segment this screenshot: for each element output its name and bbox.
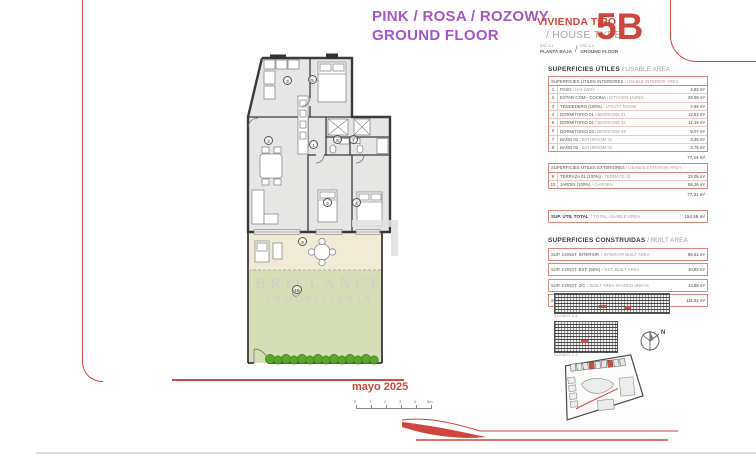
room-number-bathroom2: 8	[333, 135, 342, 144]
built-area-title: SUPERFICIES CONSTRUIDAS / BUILT AREA	[548, 237, 708, 244]
floor-plan-page: PINK / ROSA / ROZOWY GROUND FLOOR VIVIEN…	[0, 0, 756, 456]
room-number-terrace: 9	[298, 237, 307, 246]
room-number-hallway: 1	[309, 140, 318, 149]
elevation-caption-1: ALZADO 3-4	[554, 314, 578, 318]
exterior-total: 77,31 m²	[548, 189, 708, 200]
planta-baja-label: PLANTA BAJA	[540, 49, 572, 55]
area-row: 7 BAÑO 01 / BATHROOM 01 3,45 m²	[549, 135, 707, 143]
interior-total: 77,24 m²	[548, 152, 708, 163]
usable-interior-header: SUPERFICIES ÚTILES INTERIORES / USABLE I…	[549, 77, 707, 86]
room-number-bedroom2: 5	[308, 75, 317, 84]
usable-interior-table: SUPERFICIES ÚTILES INTERIORES / USABLE I…	[548, 76, 708, 152]
decorative-swoosh	[388, 414, 688, 446]
floor-plan-drawing	[230, 50, 400, 380]
watermark-line2: INMOBILIARIA	[238, 294, 402, 305]
page-title-line1: PINK / ROSA / ROZOWY	[372, 8, 549, 27]
date-label: mayo 2025	[352, 381, 408, 393]
area-row: 10 JARDÍN (100%) / GARDEN 55,26 m²	[549, 180, 707, 188]
built-area-row: SUP. CONST. Z/C / BUILT AREA SHARED AREA…	[548, 279, 708, 292]
unit-code: 5B	[596, 8, 643, 45]
usable-exterior-table: SUPERFICIES ÚTILES EXTERIORES / USABLE E…	[548, 163, 708, 190]
elevation-drawing-2	[554, 321, 618, 353]
watermark-logo	[352, 220, 398, 256]
scale-label-4: 4	[414, 399, 416, 404]
built-area-row: SUP. CONST. INTERIOR / INTERIOR BUILT AR…	[548, 248, 708, 261]
area-row: 1 PASO / HALLWAY 4,92 m²	[549, 86, 707, 93]
area-row: 6 DORMITORIO 03 / BEDROOM 03 9,07 m²	[549, 126, 707, 134]
room-number-bathroom1: 7	[349, 135, 358, 144]
separator-slash: /	[575, 44, 578, 54]
scale-label-1: 1	[369, 399, 371, 404]
scale-label-5: 5m	[427, 399, 433, 404]
built-area-row: SUP. CONST. EXT. (50%) / EXT. BUILT AREA…	[548, 263, 708, 276]
area-row: 8 BAÑO 02 / BATHROOM 02 3,75 m²	[549, 143, 707, 151]
room-number-bedroom3: 6	[323, 198, 332, 207]
area-row: 3 TENDEDERO (100%) / UTILITY ROOM 2,66 m…	[549, 102, 707, 110]
area-row: 5 DORMITORIO 02 / BEDROOM 02 11,18 m²	[549, 118, 707, 126]
footer-rule	[36, 452, 756, 454]
usable-area-title: SUPERFICIES ÚTILES / USABLE AREA	[548, 66, 708, 73]
elevation-drawing-1	[554, 293, 670, 314]
room-number-utility: 3	[283, 76, 292, 85]
page-title: PINK / ROSA / ROZOWY GROUND FLOOR	[372, 8, 549, 46]
total-usable-row: SUP. ÚTIL TOTAL / TOTAL USABLE AREA 154,…	[548, 210, 708, 223]
watermark-line1: BRILLANCE	[238, 276, 402, 293]
scale-label-2: 2	[384, 399, 386, 404]
room-number-bedroom1: 4	[352, 198, 361, 207]
scale-bar-line	[356, 408, 432, 409]
usable-exterior-header: SUPERFICIES ÚTILES EXTERIORES / USABLE E…	[549, 164, 707, 173]
area-tables: SUPERFICIES ÚTILES / USABLE AREA SUPERFI…	[548, 66, 708, 310]
room-number-living: 2	[264, 136, 273, 145]
scale-label-3: 3	[399, 399, 401, 404]
left-frame-line	[82, 0, 103, 382]
watermark-logo-bar-vertical	[391, 220, 398, 256]
area-row: 9 TERRAZA 01 (100%) / TERRACE 01 22,05 m…	[549, 173, 707, 180]
top-right-frame-line	[670, 0, 756, 62]
area-row: 4 DORMITORIO 01 / BEDROOM 01 12,63 m²	[549, 110, 707, 118]
watermark: BRILLANCE INMOBILIARIA	[238, 276, 402, 305]
ground-floor-label: GROUND FLOOR	[580, 49, 618, 55]
north-label: N	[661, 330, 665, 336]
scale-label-0: 0	[354, 399, 356, 404]
page-title-line2: GROUND FLOOR	[372, 27, 549, 46]
room-number-garden: 10	[292, 285, 302, 294]
area-row: 2 ESTAR-COM.- COCINA / KITCHEN-LIVING 29…	[549, 93, 707, 101]
